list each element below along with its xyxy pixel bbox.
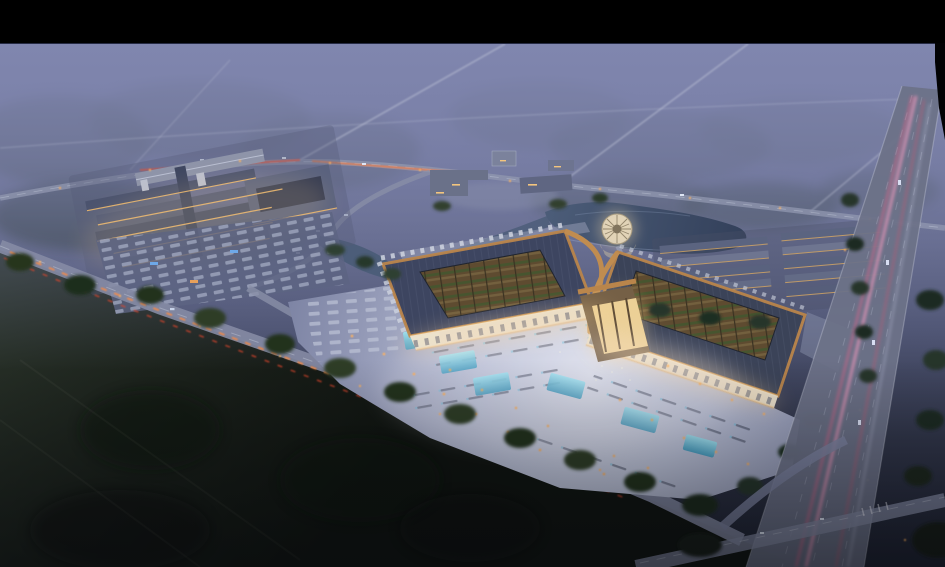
letterbox-edge-line (0, 43, 945, 44)
vignette (0, 0, 945, 567)
scene-svg: Aerial dusk rendering of a traditional-r… (0, 0, 945, 567)
letterbox-bar-top (0, 0, 945, 43)
rendering-canvas: Aerial dusk rendering of a traditional-r… (0, 0, 945, 567)
